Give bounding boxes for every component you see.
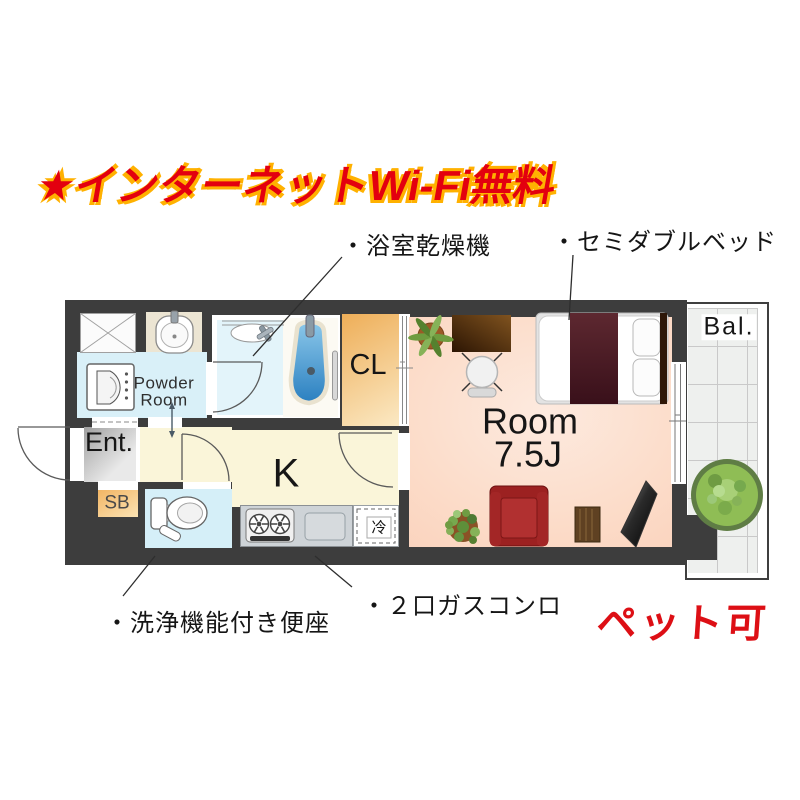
desk-plant-icon	[408, 314, 454, 359]
kitchen-door-arc	[339, 433, 393, 487]
kitchen-label: K	[273, 454, 300, 495]
window-icon	[669, 364, 686, 482]
powder-room-label: Powder Room	[118, 375, 210, 410]
floorplan-canvas: ★インターネットWi-Fi無料 ・浴室乾燥機 ・セミダブルベッド	[0, 0, 800, 800]
leader-stove	[315, 556, 352, 587]
callout-washlet: ・洗浄機能付き便座	[105, 603, 330, 638]
balcony-bush-icon	[691, 459, 763, 531]
callout-gas-stove: ・２口ガスコンロ	[362, 586, 562, 621]
desk-icon	[452, 315, 511, 352]
bathroom-door-arc	[213, 362, 262, 412]
bathroom-sink-icon	[222, 321, 284, 345]
tv-icon	[621, 481, 657, 547]
shaft-x-icon	[81, 314, 136, 353]
bed-icon	[536, 313, 668, 404]
shoebox-label: SB	[104, 493, 129, 512]
pet-ok-note: ペット可	[595, 591, 771, 649]
toilet-door-arc	[182, 434, 229, 481]
entrance-label: Ent.	[85, 429, 133, 457]
stove-icon	[246, 509, 294, 542]
closet-label: CL	[349, 351, 386, 381]
floor-plant-icon	[445, 509, 480, 544]
sliding-door-icon	[396, 316, 413, 424]
balcony-label: Bal.	[701, 314, 756, 340]
bathtub-icon	[291, 315, 338, 403]
entrance-door-arc	[18, 427, 70, 480]
leader-washlet	[123, 556, 155, 596]
fridge-label: 冷	[371, 520, 386, 535]
leader-bed	[569, 255, 573, 320]
main-room-size-label: 7.5J	[494, 437, 562, 474]
washbasin-icon	[156, 311, 193, 353]
kitchen-sink-icon	[305, 513, 345, 540]
desk-chair-icon	[462, 353, 502, 397]
stool-icon	[575, 507, 600, 542]
toilet-icon	[151, 497, 207, 542]
sofa-icon	[490, 486, 548, 546]
